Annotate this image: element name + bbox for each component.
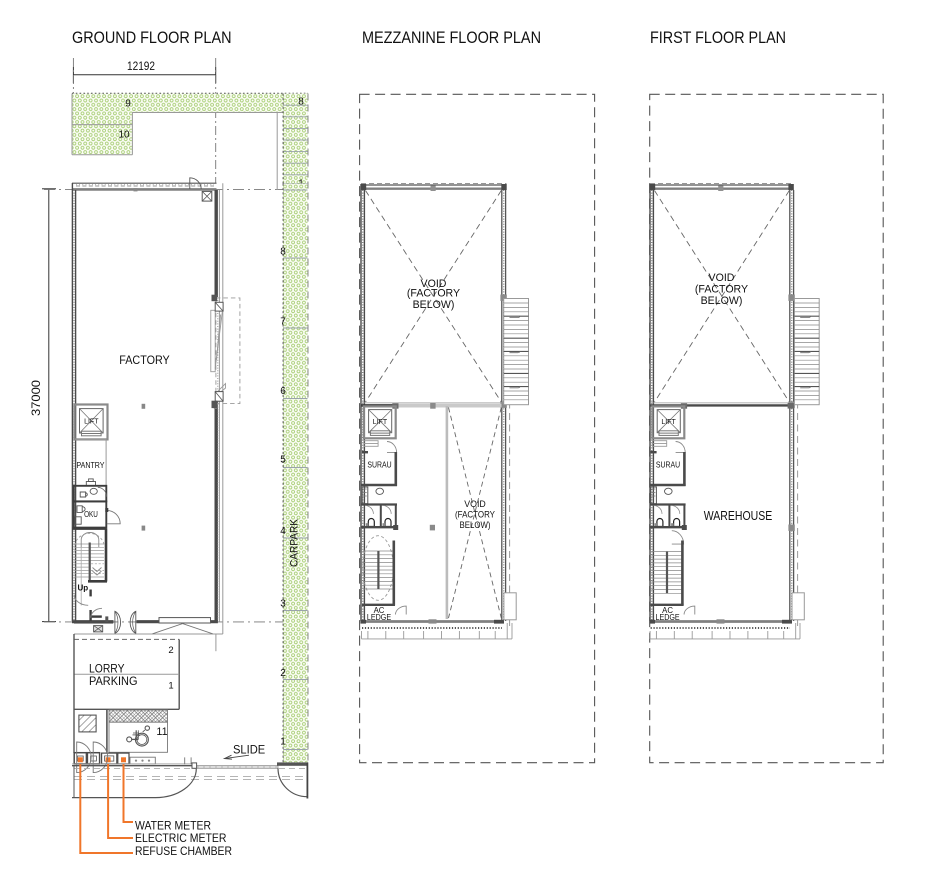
svg-text:VOID: VOID [464,499,486,509]
svg-text:VOID: VOID [709,272,735,284]
svg-text:3: 3 [280,599,286,610]
svg-text:5: 5 [280,455,286,466]
svg-text:1: 1 [168,681,173,692]
svg-text:8: 8 [298,97,304,108]
svg-text:CARPARK: CARPARK [289,518,301,567]
svg-text:11: 11 [156,726,167,738]
svg-text:LIFT: LIFT [373,419,388,426]
svg-text:1: 1 [280,737,286,748]
svg-text:SLIDE: SLIDE [233,743,265,757]
svg-text:2: 2 [280,668,286,679]
svg-text:8: 8 [280,247,286,258]
svg-text:FACTORY: FACTORY [119,353,170,367]
svg-text:PARKING: PARKING [89,674,138,688]
svg-text:BELOW): BELOW) [701,295,743,307]
svg-text:BELOW): BELOW) [460,520,491,530]
svg-text:12192: 12192 [127,59,155,73]
svg-text:SURAU: SURAU [656,461,680,470]
svg-text:(FACTORY: (FACTORY [407,288,460,300]
svg-text:Up: Up [78,584,89,593]
svg-text:REFUSE CHAMBER: REFUSE CHAMBER [135,844,232,858]
svg-text:(FACTORY: (FACTORY [455,510,495,520]
svg-text:LIFT: LIFT [84,419,99,426]
svg-text:FIRST FLOOR PLAN: FIRST FLOOR PLAN [650,29,786,47]
svg-text:MEZZANINE FLOOR PLAN: MEZZANINE FLOOR PLAN [362,29,541,47]
svg-text:7: 7 [280,317,286,328]
svg-text:SURAU: SURAU [367,461,391,470]
svg-text:6: 6 [280,386,286,397]
svg-text:OKU: OKU [84,510,98,519]
svg-text:BELOW): BELOW) [413,299,455,311]
svg-text:4: 4 [280,526,286,537]
svg-text:9: 9 [125,99,131,110]
svg-text:37000: 37000 [31,380,43,416]
svg-text:WAREHOUSE: WAREHOUSE [704,509,773,523]
svg-text:10: 10 [118,130,130,141]
svg-text:ELECTRIC METER: ELECTRIC METER [135,831,227,845]
svg-text:GROUND FLOOR PLAN: GROUND FLOOR PLAN [72,29,232,47]
svg-text:PANTRY: PANTRY [77,461,106,470]
svg-text:LIFT: LIFT [661,419,676,426]
svg-text:2: 2 [168,645,173,656]
svg-text:(FACTORY: (FACTORY [695,284,748,296]
